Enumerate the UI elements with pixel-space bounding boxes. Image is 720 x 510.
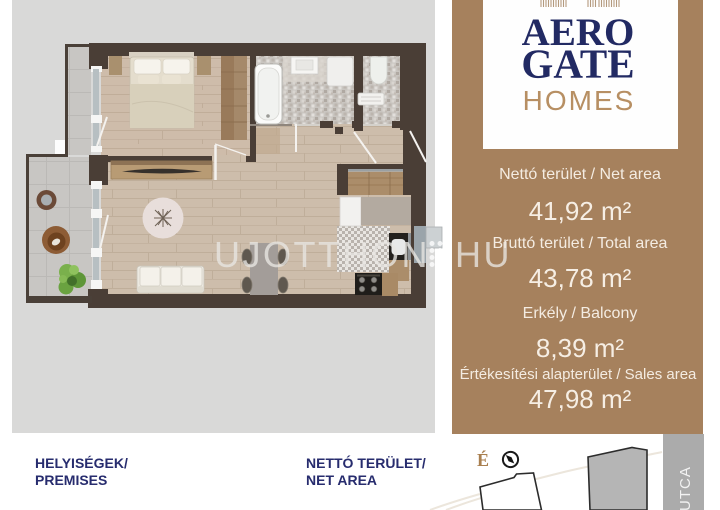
svg-text:Értékesítési alapterület / Sal: Értékesítési alapterület / Sales area: [460, 366, 697, 383]
svg-text:UJOTTHON: UJOTTHON: [214, 234, 430, 275]
svg-text:Nettó terület / Net area: Nettó terület / Net area: [499, 166, 661, 183]
svg-text:GATE: GATE: [521, 41, 634, 87]
svg-text:UTCA: UTCA: [677, 466, 694, 510]
svg-text:43,78 m²: 43,78 m²: [529, 263, 632, 293]
svg-text:41,92 m²: 41,92 m²: [529, 196, 632, 226]
svg-text:Erkély / Balcony: Erkély / Balcony: [523, 305, 638, 322]
svg-text:Bruttó terület / Total area: Bruttó terület / Total area: [493, 235, 668, 252]
svg-text:PREMISES: PREMISES: [35, 472, 107, 488]
svg-text:HOMES: HOMES: [523, 85, 636, 116]
svg-text:HELYISÉGEK/: HELYISÉGEK/: [35, 455, 128, 471]
svg-text:47,98 m²: 47,98 m²: [529, 384, 632, 414]
svg-text:8,39 m²: 8,39 m²: [536, 333, 624, 363]
svg-text:NETTÓ TERÜLET/: NETTÓ TERÜLET/: [306, 454, 426, 471]
svg-text:É: É: [477, 449, 489, 470]
svg-text:NET AREA: NET AREA: [306, 472, 377, 488]
